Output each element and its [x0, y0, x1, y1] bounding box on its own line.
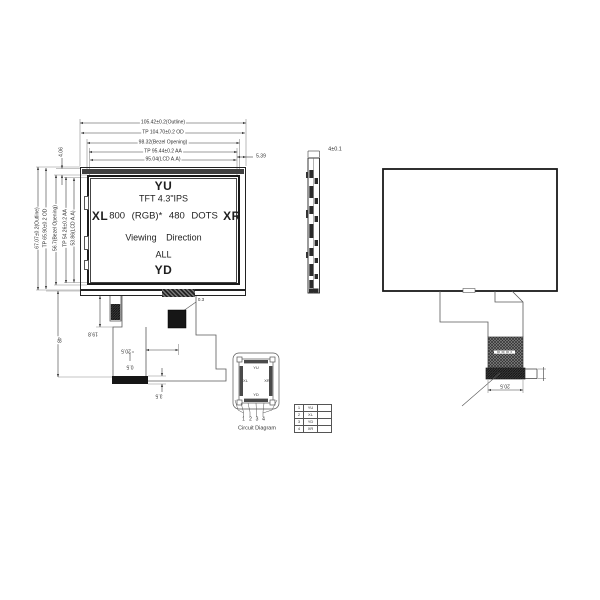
dim-back-fpc-width: 20.5 — [499, 383, 511, 388]
table-row: 4 XR — [295, 426, 332, 433]
empty-cell — [318, 419, 332, 426]
dim-tp-od-width: TP 104.70±0.2 OD — [141, 131, 185, 136]
circuit-label-yd: YD — [253, 393, 259, 397]
screen-label-xl: XL — [92, 210, 108, 222]
front-left-notch-2 — [84, 236, 89, 250]
dim-bezel-height: 56.7(Bezel Opening) — [54, 204, 59, 252]
front-left-notch-1 — [84, 196, 89, 210]
dim-fpc-tail-offset: 19.8 — [87, 331, 99, 336]
drawing-linework — [0, 0, 600, 600]
pin-cell: 4 — [295, 426, 304, 433]
screen-label-viewing: Viewing Direction — [125, 234, 201, 243]
side-view — [306, 151, 320, 293]
screen-label-yd: YD — [155, 264, 173, 276]
dim-bezel-width: 98.32(Bezel Opening) — [138, 141, 189, 146]
empty-cell — [318, 426, 332, 433]
table-row: 2 XL — [295, 412, 332, 419]
dim-lcd-aa-height: 53.86(LCD A.A) — [72, 209, 77, 246]
pin-assignment-table: 1 YU 2 XL 3 YD 4 XR — [294, 404, 332, 433]
lcd-module-drawing: YU TFT 4.3"IPS XL 800 (RGB)* 480 DOTS XR… — [0, 0, 600, 600]
table-row: 3 YD — [295, 419, 332, 426]
signal-cell: XL — [304, 412, 318, 419]
signal-cell: YU — [304, 405, 318, 412]
circuit-diagram-caption: Circuit Diagram — [238, 426, 276, 432]
front-fpc-component — [168, 310, 186, 328]
dim-outline-width: 105.42±0.2(Outline) — [140, 121, 186, 126]
screen-label-all: ALL — [155, 251, 171, 260]
dim-tp-aa-height: TP 54.26±0.2 AA — [64, 208, 69, 248]
screen-label-yu: YU — [155, 180, 173, 192]
dim-fpc-fold: 0.3 — [197, 298, 205, 303]
pin-cell: 2 — [295, 412, 304, 419]
dim-outline-height: 67.07±0.2(Outline) — [36, 206, 41, 249]
screen-label-xr: XR — [223, 210, 241, 222]
dim-top-offset: 4.06 — [60, 146, 65, 158]
front-left-notch-3 — [84, 260, 89, 270]
pin-cell: 3 — [295, 419, 304, 426]
circuit-diagram-linework — [233, 353, 279, 417]
dim-tp-aa-width: TP 95.44±0.2 AA — [143, 150, 183, 155]
circuit-pin-2: 2 — [249, 418, 252, 423]
empty-cell — [318, 405, 332, 412]
circuit-label-xl: XL — [243, 379, 248, 383]
dim-fpc-length: 48 — [56, 336, 61, 344]
signal-cell: XR — [304, 426, 318, 433]
dim-fpc-width: 20.5 — [120, 348, 132, 353]
circuit-label-xr: XR — [264, 379, 270, 383]
dim-side-thickness: 4±0.1 — [327, 147, 343, 153]
empty-cell — [318, 412, 332, 419]
dim-right-offset: 5.39 — [255, 155, 267, 160]
table-row: 1 YU — [295, 405, 332, 412]
dim-tp-od-height: TP 65.90±0.2 OD — [44, 208, 49, 249]
dim-fpc-stiffener: 0.5 — [126, 364, 135, 369]
circuit-label-yu: YU — [253, 366, 259, 370]
dim-fpc-connector-height: 3.5 — [155, 393, 164, 398]
back-view — [383, 169, 557, 406]
front-top-bezel-bar — [82, 169, 244, 175]
circuit-pin-3: 3 — [256, 418, 259, 423]
circuit-pin-4: 4 — [262, 418, 265, 423]
dim-lcd-aa-width: 95.04(LCD A.A) — [144, 158, 181, 163]
front-fpc-connector-bar — [112, 376, 148, 384]
front-fpc-exit-hatch — [162, 289, 195, 297]
screen-label-resolution: 800 (RGB)* 480 DOTS — [109, 211, 218, 221]
circuit-pin-1: 1 — [242, 418, 245, 423]
pin-cell: 1 — [295, 405, 304, 412]
screen-label-model: TFT 4.3"IPS — [139, 195, 188, 204]
signal-cell: YD — [304, 419, 318, 426]
